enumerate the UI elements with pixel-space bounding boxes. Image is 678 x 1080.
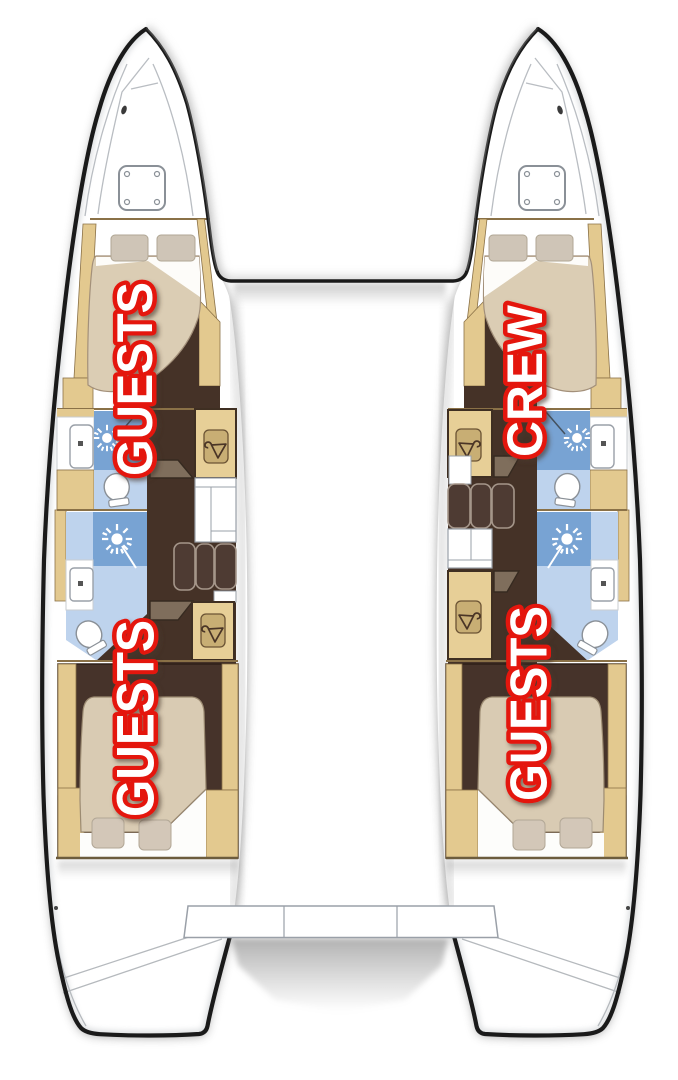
svg-text:GUESTS: GUESTS <box>107 282 163 476</box>
svg-text:GUESTS: GUESTS <box>500 606 558 801</box>
svg-text:CREW: CREW <box>496 305 553 457</box>
svg-text:GUESTS: GUESTS <box>107 620 166 817</box>
